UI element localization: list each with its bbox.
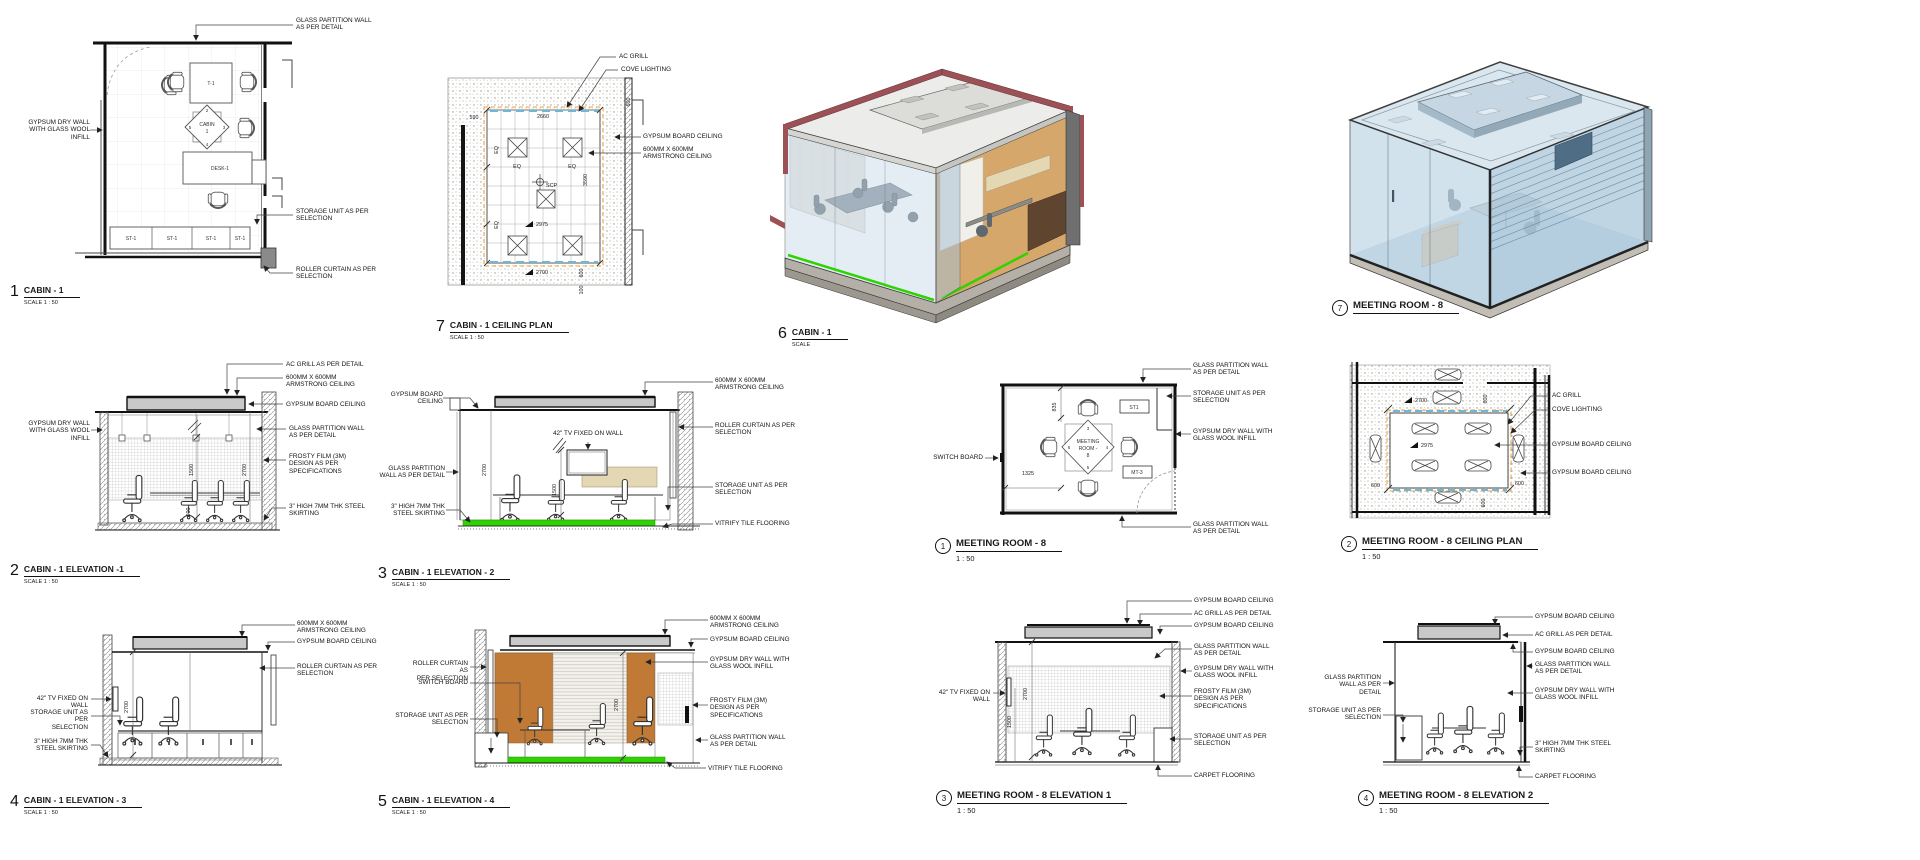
svg-text:600: 600 [1481,499,1487,508]
svg-text:2700: 2700 [1415,398,1427,404]
cabin1-3d-art [770,55,1115,355]
title-cabin1-ceiling: 7 CABIN - 1 CEILING PLAN SCALE 1 : 50 [436,320,569,341]
title-cabin1-elev1: 2 CABIN - 1 ELEVATION -1 SCALE 1 : 50 [10,564,140,585]
meeting8-ceiling-plan: 2700 600 2975 600 600 600 AC GRILL COVE … [1335,350,1665,568]
annotation-storage: STORAGE UNIT AS PER SELECTION [1308,707,1381,722]
annotation-armstrong: 600MM X 600MM ARMSTRONG CEILING [297,620,382,635]
annotation-drywall: GYPSUM DRY WALL WITH GLASS WOOL INFILL [710,656,802,671]
annotation-glass-partition: GLASS PARTITION WALL AS PER DETAIL [289,425,379,440]
annotation-glass-partition: GLASS PARTITION WALL AS PER DETAIL [1194,643,1279,658]
annotation-gypsum1: GYPSUM BOARD CEILING [1535,613,1630,620]
svg-text:MEETING: MEETING [1077,439,1100,445]
annotation-glass-partition: GLASS PARTITION WALL AS PER DETAIL [296,17,386,32]
annotation-switch-board: SWITCH BOARD [417,679,468,686]
annotation-cove-lighting: COVE LIGHTING [621,66,691,73]
title-meeting8-plan: 1 MEETING ROOM - 8 1 : 50 [935,538,1062,563]
svg-text:835: 835 [1052,403,1058,412]
annotation-glass-bottom: GLASS PARTITION WALL AS PER DETAIL [1193,521,1273,536]
title-meeting8-ceiling: 2 MEETING ROOM - 8 CEILING PLAN 1 : 50 [1341,536,1538,561]
svg-text:EQ: EQ [513,164,521,170]
annotation-armstrong: 600MM X 600MM ARMSTRONG CEILING [710,615,795,630]
svg-text:600: 600 [579,269,585,278]
annotation-tv: 42" TV FIXED ON WALL [18,695,88,710]
annotation-skirting: 3" HIGH 7MM THK STEEL SKIRTING [289,503,379,518]
table-tag: T-1 [207,81,214,87]
annotation-gypsum-ceiling: GYPSUM BOARD CEILING [381,391,443,406]
annotation-roller: ROLLER CURTAIN AS PER SELECTION [297,663,387,678]
svg-text:2700: 2700 [124,701,130,713]
cabin-marker-no: 1 [206,129,209,135]
svg-text:590: 590 [470,115,479,121]
annotation-roller: ROLLER CURTAIN AS PER SELECTION [296,266,388,281]
svg-text:2700: 2700 [482,464,488,476]
svg-text:ST-1: ST-1 [235,236,246,242]
annotation-ac-grill: AC GRILL AS PER DETAIL [1194,610,1289,617]
annotation-vitrify: VITRIFY TILE FLOORING [708,765,803,772]
annotation-gypsum2: GYPSUM BOARD CEILING [1194,622,1289,629]
svg-text:ST-1: ST-1 [126,236,137,242]
title-meeting8-elev2: 4 MEETING ROOM - 8 ELEVATION 2 1 : 50 [1358,790,1549,815]
annotation-storage: STORAGE UNIT AS PER SELECTION [16,709,88,731]
title-cabin1-elev2: 3 CABIN - 1 ELEVATION - 2 SCALE 1 : 50 [378,567,510,588]
svg-text:EQ: EQ [494,146,500,154]
svg-text:2700: 2700 [1023,688,1029,700]
cabin-marker-name: CABIN [199,122,215,128]
annotation-drywall: GYPSUM DRY WALL WITH GLASS WOOL INFILL [28,420,90,442]
annotation-armstrong: 600MM X 600MM ARMSTRONG CEILING [715,377,800,392]
svg-text:8: 8 [1087,453,1090,459]
meeting8-3d-art [1330,50,1670,325]
cabin1-elevation2: 2700 1500 42" TV FIXED ON WALL GYPSUM BO… [375,350,810,598]
title-meeting8-3d: 7 MEETING ROOM - 8 [1332,300,1459,316]
annotation-vitrify: VITRIFY TILE FLOORING [715,520,810,527]
annotation-ac-grill: AC GRILL AS PER DETAIL [1535,631,1630,638]
annotation-carpet: CARPET FLOORING [1194,772,1284,779]
annotation-gypsum1: GYPSUM BOARD CEILING [1552,441,1647,448]
drawing-sheet: T-1 CABIN 1 2 3 4 5 DESK-1 ST-1 ST-1 ST-… [0,0,1920,860]
svg-text:1500: 1500 [552,484,558,496]
annotation-skirting: 3" HIGH 7MM THK STEEL SKIRTING [385,503,445,518]
meeting8-elevation1: 2700 1500 42" TV FIXED ON WALL GYPSUM BO… [920,590,1220,825]
annotation-gypsum2: GYPSUM BOARD CEILING [1535,648,1630,655]
svg-text:1500: 1500 [189,464,195,476]
svg-text:ROOM -: ROOM - [1079,446,1098,452]
annotation-ac-grill: AC GRILL [619,53,679,60]
annotation-drywall: GYPSUM DRY WALL WITH GLASS WOOL INFILL [1535,687,1627,702]
annotation-roller: ROLLER CURTAIN AS PER SELECTION [715,422,805,437]
annotation-glass-partition: GLASS PARTITION WALL AS PER DETAIL [375,465,445,480]
svg-text:3590: 3590 [583,174,589,186]
annotation-storage: STORAGE UNIT AS PER SELECTION [296,208,386,223]
annotation-storage: STORAGE UNIT AS PER SELECTION [1193,390,1273,405]
annotation-tv: 42" TV FIXED ON WALL [533,430,643,437]
desk-tag: DESK-1 [211,166,229,172]
annotation-gypsum-ceiling: GYPSUM BOARD CEILING [710,636,805,643]
annotation-storage: STORAGE UNIT AS PER SELECTION [395,712,468,727]
svg-text:ST-1: ST-1 [167,236,178,242]
annotation-drywall: GYPSUM DRY WALL WITH GLASS WOOL INFILL [20,119,90,141]
svg-text:EQ: EQ [494,221,500,229]
st1-tag: ST1 [1129,405,1138,411]
svg-text:EQ: EQ [568,164,576,170]
meeting8-elevation2: GLASS PARTITION WALL AS PER DETAIL STORA… [1300,590,1640,825]
annotation-gypsum-ceiling: GYPSUM BOARD CEILING [286,401,381,408]
annotation-drywall: GYPSUM DRY WALL WITH GLASS WOOL INFILL [1193,428,1278,443]
annotation-glass-left: GLASS PARTITION WALL AS PER DETAIL [1318,674,1381,696]
annotation-drywall: GYPSUM DRY WALL WITH GLASS WOOL INFILL [1194,665,1284,680]
svg-text:1500: 1500 [1007,716,1013,728]
cabin1-elevation1: 1500 2700 600 AC GRILL AS PER DETAIL 600… [0,350,400,595]
meeting8-plan: ST1 MT-3 MEETING ROOM - 8 3 4 5 6 835 13… [925,350,1220,568]
annotation-armstrong: 600MM X 600MM ARMSTRONG CEILING [286,374,371,389]
annotation-armstrong: 600MM X 600MM ARMSTRONG CEILING [643,146,723,161]
annotation-skirting: 3" HIGH 7MM THK STEEL SKIRTING [1535,740,1627,755]
svg-text:2700: 2700 [242,464,248,476]
scp-tag: SCP [546,183,557,189]
svg-text:600: 600 [1483,395,1489,404]
svg-text:600: 600 [1515,481,1524,487]
svg-text:600: 600 [186,508,192,517]
cabin1-elevation4: 2700 ROLLER CURTAIN AS PER SELECTION SWI… [375,595,810,845]
annotation-switch-board: SWITCH BOARD [931,454,983,461]
title-cabin1-3d: 6 CABIN - 1 SCALE [778,327,848,348]
annotation-gypsum-ceiling: GYPSUM BOARD CEILING [643,133,733,140]
svg-text:2700: 2700 [614,699,620,711]
meeting8-3d-view: 7 MEETING ROOM - 8 [1330,50,1670,325]
cabin1-3d-view: 6 CABIN - 1 SCALE [770,55,1115,355]
svg-text:2660: 2660 [537,114,549,120]
cabin1-plan: T-1 CABIN 1 2 3 4 5 DESK-1 ST-1 ST-1 ST-… [0,0,400,318]
annotation-ac-grill: AC GRILL [1552,392,1612,399]
mt3-tag: MT-3 [1131,470,1143,476]
annotation-ac-grill: AC GRILL AS PER DETAIL [286,361,381,368]
annotation-glass-partition: GLASS PARTITION WALL AS PER DETAIL [710,734,800,749]
annotation-storage: STORAGE UNIT AS PER SELECTION [715,482,805,497]
cabin1-ceiling-plan: SCP 590 2660 600 EQ EQ EQ 3590 EQ 2975 2… [430,40,765,358]
svg-text:600: 600 [626,98,632,107]
annotation-storage: STORAGE UNIT AS PER SELECTION [1194,733,1279,748]
annotation-frosty-film: FROSTY FILM (3M) DESIGN AS PER SPECIFICA… [710,697,790,719]
annotation-glass-partition: GLASS PARTITION WALL AS PER DETAIL [1535,661,1625,676]
annotation-glass-top: GLASS PARTITION WALL AS PER DETAIL [1193,362,1273,377]
svg-text:2975: 2975 [536,222,548,228]
title-cabin1-elev4: 5 CABIN - 1 ELEVATION - 4 SCALE 1 : 50 [378,795,510,816]
svg-text:2975: 2975 [1421,443,1433,449]
annotation-tv: 42" TV FIXED ON WALL [922,689,990,704]
svg-text:100: 100 [579,286,585,295]
annotation-carpet: CARPET FLOORING [1535,773,1625,780]
title-meeting8-elev1: 3 MEETING ROOM - 8 ELEVATION 1 1 : 50 [936,790,1127,815]
svg-text:ST-1: ST-1 [206,236,217,242]
cabin1-ceiling-art: SCP 590 2660 600 EQ EQ EQ 3590 EQ 2975 2… [430,40,765,358]
annotation-skirting: 3" HIGH 7MM THK STEEL SKIRTING [28,738,88,753]
svg-text:2700: 2700 [536,270,548,276]
annotation-frosty-film: FROSTY FILM (3M) DESIGN AS PER SPECIFICA… [1194,688,1274,710]
title-cabin1-plan: 1 CABIN - 1 SCALE 1 : 50 [10,285,80,306]
cabin1-elevation3: 2700 42" TV FIXED ON WALL STORAGE UNIT A… [0,595,400,845]
svg-text:600: 600 [1371,483,1380,489]
annotation-gypsum2: GYPSUM BOARD CEILING [1552,469,1647,476]
annotation-frosty-film: FROSTY FILM (3M) DESIGN AS PER SPECIFICA… [289,453,369,475]
annotation-gypsum1: GYPSUM BOARD CEILING [1194,597,1289,604]
svg-text:1325: 1325 [1022,471,1034,477]
title-cabin1-elev3: 4 CABIN - 1 ELEVATION - 3 SCALE 1 : 50 [10,795,142,816]
annotation-cove-lighting: COVE LIGHTING [1552,406,1622,413]
